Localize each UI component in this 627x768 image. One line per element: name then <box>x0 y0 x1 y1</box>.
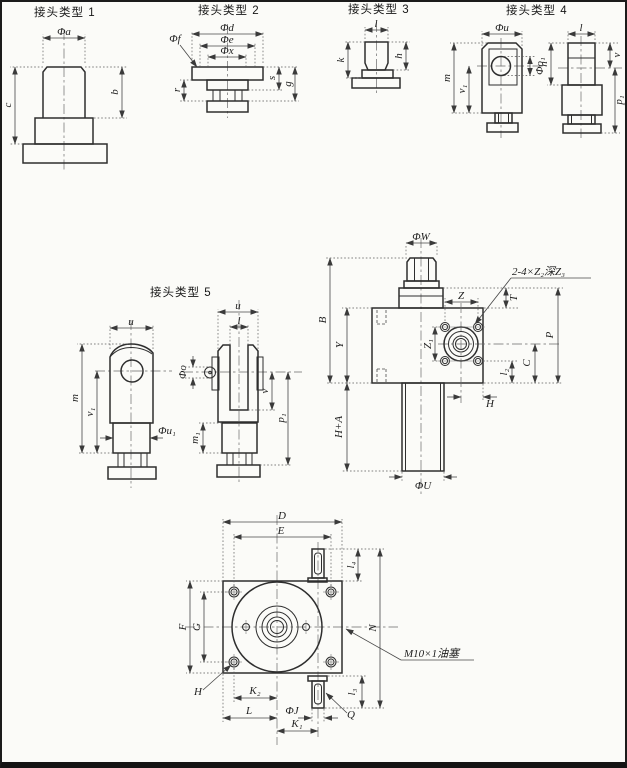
joint-type-2-title: 接头类型 2 <box>198 3 260 17</box>
dim-label-k: k <box>335 56 347 62</box>
dim-label-b: b <box>109 89 121 95</box>
type4-side-lower <box>562 85 602 115</box>
dim-label-Y: Y <box>334 340 346 348</box>
dim-label-u2: u <box>235 300 241 312</box>
dim-label-v: v <box>611 52 623 57</box>
bottom-plug <box>308 676 327 708</box>
top-plug <box>308 549 327 582</box>
dim-label-phi-d: Φd <box>220 22 234 34</box>
joint-type-5-view: 接头类型 5 u m v₁ Φu₁ <box>69 285 302 488</box>
dim-label-phi-w: ΦW <box>412 231 430 243</box>
type5-pin-end <box>205 367 216 378</box>
dim-label-phi-U: ΦU <box>415 480 432 492</box>
dim-label-m: m <box>441 74 453 82</box>
dim-label-phi-a: Φa <box>57 26 71 38</box>
dim-label-L: L <box>245 705 252 717</box>
dim-label-v5: v <box>259 388 271 393</box>
dim-label-H-asm: H <box>485 398 495 410</box>
dim-label-phi-u: Φu <box>495 22 509 34</box>
dim-label-T: T <box>508 294 520 301</box>
dim-label-c: c <box>2 102 14 107</box>
type5-neck <box>113 423 150 453</box>
joint-type-1-title: 接头类型 1 <box>34 5 96 19</box>
engineering-drawing: 接头类型 1 Φa b c 接头类型 2 Φd Φe <box>0 0 627 768</box>
dim-label-p1: p₁ <box>613 95 625 106</box>
dim-label-Z: Z <box>458 290 465 302</box>
dim-label-phi-J: ΦJ <box>285 705 299 717</box>
joint-type-3-view: 接头类型 3 l h k <box>335 2 410 94</box>
type3-base <box>352 78 400 88</box>
dim-label-l4: l₄ <box>345 561 357 568</box>
joint-type-4-title: 接头类型 4 <box>506 3 568 17</box>
dim-label-phi-x: Φx <box>220 45 233 57</box>
joint-type-1-view: 接头类型 1 Φa b c <box>2 5 127 172</box>
dim-label-F: F <box>177 623 189 631</box>
joint-type-3-title: 接头类型 3 <box>348 2 410 16</box>
type5-fork-outline <box>218 345 258 422</box>
dim-label-v1-5: v₁ <box>84 407 96 416</box>
dim-label-u: u <box>128 316 134 328</box>
joint-type-4-view: 接头类型 4 Φu Φo₁ m v₁ <box>441 3 625 138</box>
dim-label-phi-u1: Φu₁ <box>158 425 176 437</box>
dim-label-phi-f: Φf <box>169 33 182 45</box>
dim-label-r: r <box>171 87 183 92</box>
dim-label-K2: K₂ <box>248 685 260 697</box>
type1-base <box>23 144 107 163</box>
joint-type-5-title: 接头类型 5 <box>150 285 212 299</box>
dim-label-h: h <box>393 53 405 59</box>
dim-label-p1-5: p₁ <box>275 413 287 424</box>
joint-type-2-view: 接头类型 2 Φd Φe Φx Φf s g r <box>169 3 299 118</box>
dim-label-l3: l₃ <box>346 688 358 695</box>
dim-label-g: g <box>282 81 294 87</box>
dim-label-s: s <box>266 76 278 80</box>
dim-label-P: P <box>544 331 556 339</box>
type3-collar <box>362 70 393 78</box>
type4-clevis-outline <box>482 43 522 113</box>
dim-label-phi-o: Φo <box>177 365 189 379</box>
assembly-side-view: ΦW B Y H+A ΦU Z Z₁ 2-4×Z₂深Z₃ <box>317 231 591 494</box>
dim-label-G: G <box>191 623 203 631</box>
dim-label-K1: K₁ <box>290 718 302 730</box>
dim-label-l5: l <box>237 315 240 327</box>
tap-note-label: 2-4×Z₂深Z₃ <box>512 265 565 278</box>
dim-label-E: E <box>277 525 285 537</box>
dim-label-l2: l <box>579 22 582 34</box>
dim-label-n: n <box>538 61 550 67</box>
drawing-sheet: 接头类型 1 Φa b c 接头类型 2 Φd Φe <box>0 0 627 768</box>
base-bottom-view: D E l₄ N l₃ F G H K₂ L <box>177 510 474 745</box>
assembly-lower-tube <box>402 383 444 471</box>
dim-label-H-base: H <box>193 686 203 698</box>
dim-label-N: N <box>367 624 379 633</box>
dim-label-v1: v₁ <box>456 84 468 93</box>
dim-label-B: B <box>317 316 329 323</box>
dim-label-Q: Q <box>347 709 355 721</box>
dim-label-m1: m₁ <box>189 432 201 444</box>
dim-label-H-plus-A: H+A <box>333 416 345 439</box>
oil-plug-note: M10×1油塞 <box>403 647 461 660</box>
dim-label-Z1: Z₁ <box>422 339 434 349</box>
assembly-cap-nut <box>407 258 436 281</box>
dim-label-C: C <box>521 359 533 367</box>
type4-side-upper <box>568 43 595 85</box>
dim-label-l: l <box>374 18 377 30</box>
type5-rodend-outline <box>110 344 153 423</box>
dim-label-l2-asm: l₂ <box>498 368 510 375</box>
dim-label-D: D <box>277 510 286 522</box>
dim-label-m5: m <box>69 394 81 402</box>
